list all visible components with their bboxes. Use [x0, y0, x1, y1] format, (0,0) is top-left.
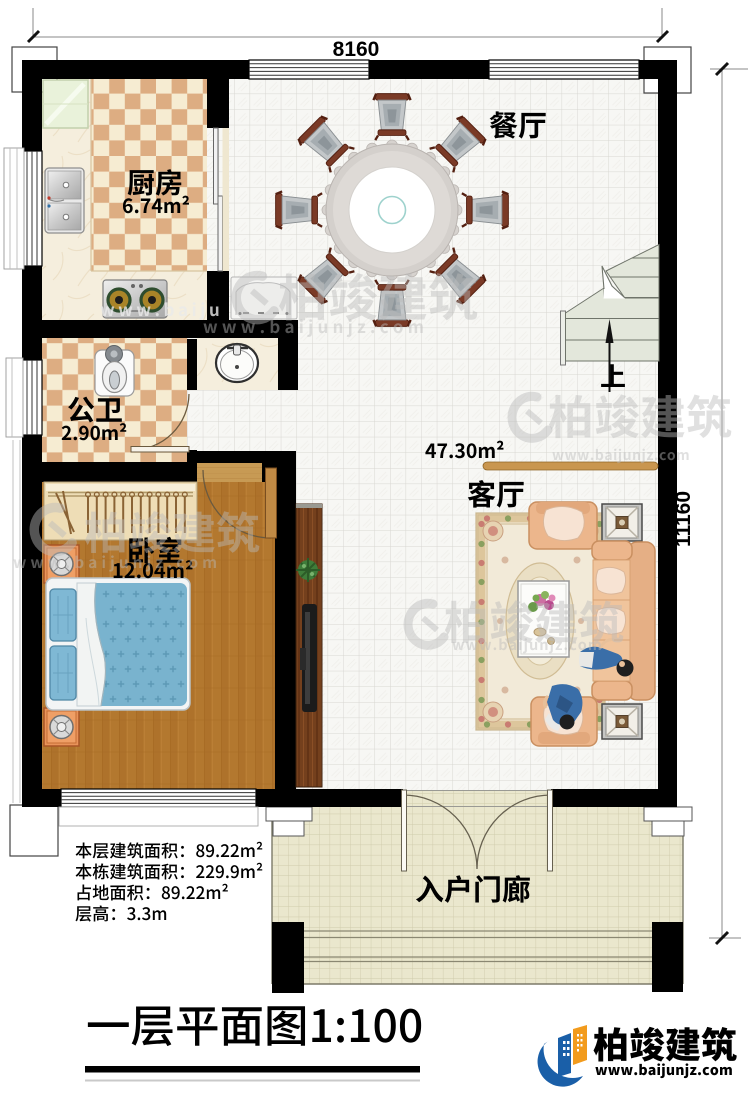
svg-text:11160: 11160	[672, 491, 695, 547]
svg-text:8160: 8160	[333, 38, 380, 61]
